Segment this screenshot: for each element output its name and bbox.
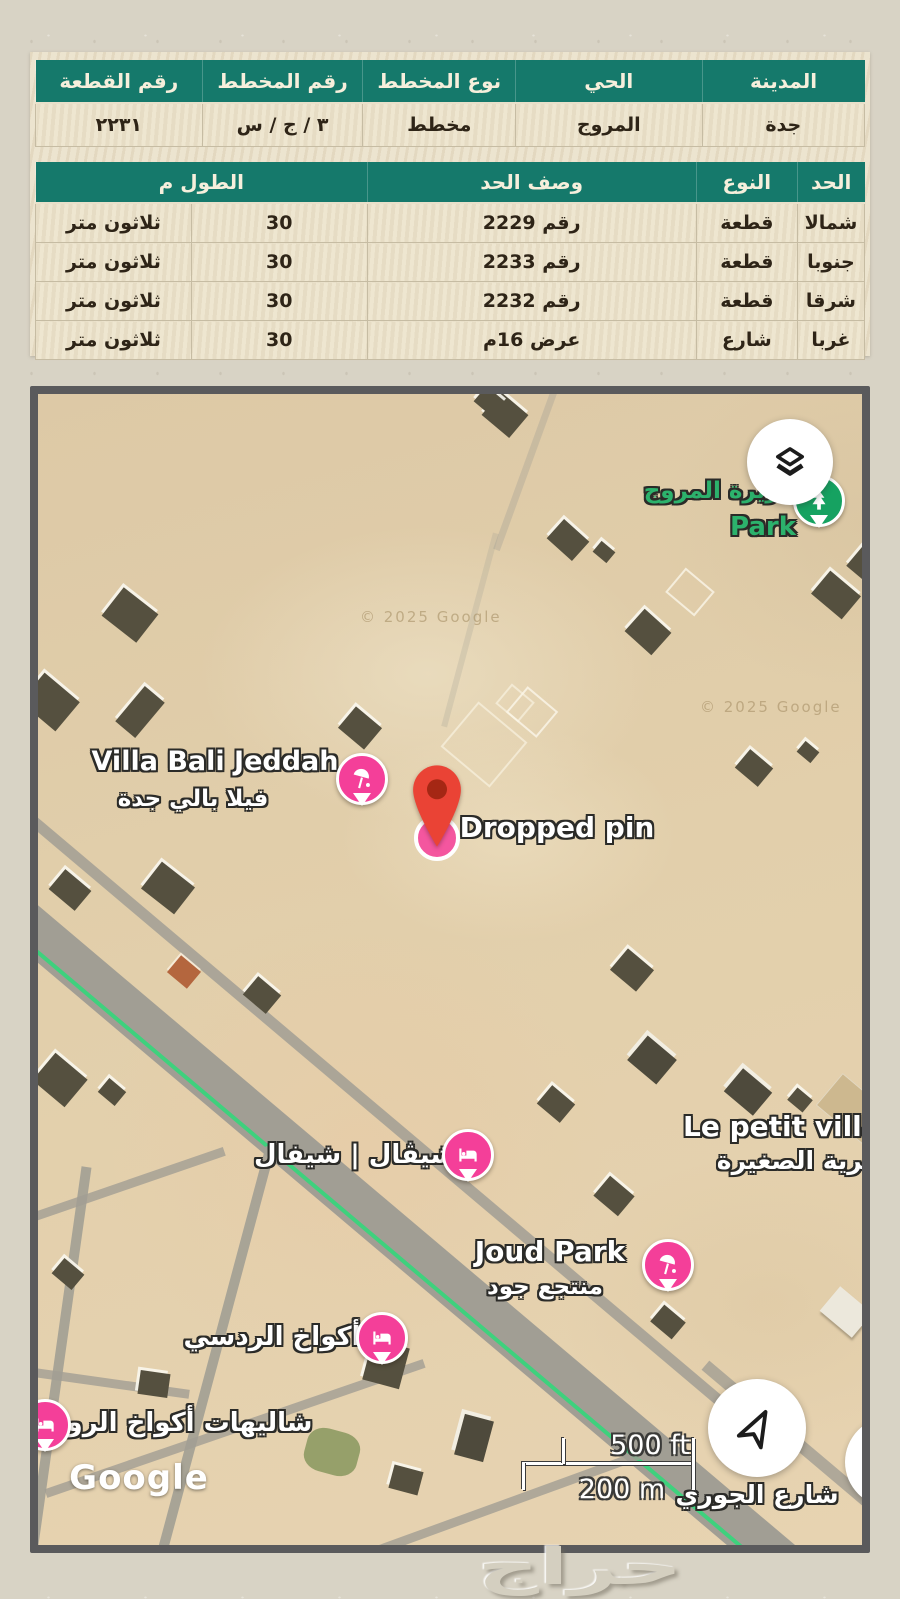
joud-park-label[interactable]: Joud Park (475, 1235, 625, 1268)
boundary-desc: رقم 2232 (367, 282, 696, 321)
highway-road (38, 888, 811, 1545)
scale-metric: 200 m (579, 1474, 665, 1505)
beach-umbrella-icon (349, 766, 375, 792)
dropped-pin-label[interactable]: Dropped pin (460, 811, 655, 844)
map-building (537, 1085, 575, 1123)
map-building (52, 1258, 85, 1290)
map-copyright: © 2025 Google (360, 608, 502, 626)
map-building (625, 609, 672, 655)
city-value: جدة (702, 103, 864, 147)
map-building (593, 541, 616, 563)
akwakh-pin[interactable] (356, 1312, 408, 1364)
boundary-length: 30 (191, 321, 367, 360)
petit-village-label-ar[interactable]: قرية الصغيرة (717, 1146, 862, 1175)
map-building (38, 1053, 88, 1108)
plot-summary-table: المدينة الحي نوع المخطط رقم المخطط رقم ا… (35, 60, 865, 147)
boundary-length-text: ثلاثون متر (36, 243, 192, 282)
boundary-side: غربا (797, 321, 864, 360)
park-label-en[interactable]: Park (730, 512, 796, 542)
plan-type-value: مخطط (363, 103, 516, 147)
col-plan-type: نوع المخطط (363, 60, 516, 103)
boundaries-table: الحد النوع وصف الحد الطول م شمالا قطعة ر… (35, 162, 865, 360)
col-type: النوع (696, 162, 797, 203)
col-length: الطول م (36, 162, 368, 203)
col-boundary: الحد (797, 162, 864, 203)
boundary-desc: رقم 2229 (367, 203, 696, 243)
map-building (98, 1078, 126, 1106)
boundary-type: قطعة (696, 243, 797, 282)
petit-village-label[interactable]: Le petit village (683, 1110, 862, 1143)
boundary-length: 30 (191, 282, 367, 321)
table-row: جدة المروج مخطط ٣ / ج / س ٢٢٣١ (36, 103, 865, 147)
navigation-arrow-icon (726, 1397, 788, 1459)
scale-bar (522, 1462, 694, 1465)
plot-number-value: ٢٢٣١ (36, 103, 203, 147)
table-row: شمالا قطعة رقم 2229 30 ثلاثون متر (36, 203, 865, 243)
map-building (102, 587, 159, 642)
bed-icon (38, 1412, 58, 1438)
col-district: الحي (516, 60, 703, 103)
chalets-label[interactable]: شاليهات أكواخ الروز (52, 1408, 313, 1438)
map-road (38, 1147, 226, 1224)
scale-bar-tick (562, 1438, 565, 1464)
layers-button[interactable] (747, 419, 833, 505)
beach-umbrella-icon (655, 1252, 681, 1278)
boundary-desc: رقم 2233 (367, 243, 696, 282)
map-building (454, 1414, 494, 1462)
google-logo: Google (69, 1458, 209, 1498)
map-building (593, 1176, 634, 1216)
map-building (115, 686, 164, 738)
cheval-label[interactable]: شيڤال | شيفال (254, 1140, 456, 1170)
map-building (38, 673, 80, 732)
col-plot-number: رقم القطعة (36, 60, 203, 103)
map-building (735, 749, 773, 787)
boundary-type: شارع (696, 321, 797, 360)
boundary-type: قطعة (696, 282, 797, 321)
navigation-button[interactable] (708, 1379, 806, 1477)
table-row: غربا شارع عرض 16م 30 ثلاثون متر (36, 321, 865, 360)
map-building (388, 1465, 423, 1496)
villa-bali-pin[interactable] (336, 753, 388, 805)
scale-bar-tick (522, 1462, 525, 1490)
table-row: شرقا قطعة رقم 2232 30 ثلاثون متر (36, 282, 865, 321)
map-building (811, 571, 861, 620)
map-building (797, 741, 820, 763)
map-building (137, 1370, 170, 1398)
boundary-length: 30 (191, 203, 367, 243)
dropped-pin-marker[interactable] (408, 763, 466, 849)
bed-icon (455, 1142, 481, 1168)
boundary-side: شرقا (797, 282, 864, 321)
map-building (820, 1286, 862, 1338)
col-city: المدينة (702, 60, 864, 103)
map-building (724, 1068, 772, 1115)
plan-number-value: ٣ / ج / س (202, 103, 363, 147)
district-value: المروج (516, 103, 703, 147)
table-row: جنوبا قطعة رقم 2233 30 ثلاثون متر (36, 243, 865, 282)
col-plan-number: رقم المخطط (202, 60, 363, 103)
map-copyright: © 2025 Google (700, 698, 842, 716)
boundary-length-text: ثلاثون متر (36, 321, 192, 360)
map-frame: © 2025 Google © 2025 Google جزيرة المروج… (30, 386, 870, 1553)
map-building (627, 1036, 677, 1085)
boundary-desc: عرض 16م (367, 321, 696, 360)
scale-imperial: 500 ft (610, 1430, 690, 1461)
scale-bar-tick (692, 1438, 695, 1490)
boundary-side: جنوبا (797, 243, 864, 282)
map-building (141, 862, 195, 915)
map-building (338, 706, 382, 749)
col-description: وصف الحد (367, 162, 696, 203)
map-building (49, 869, 92, 911)
chalets-pin[interactable] (38, 1399, 71, 1451)
joud-park-pin[interactable] (642, 1239, 694, 1291)
joud-park-label-ar[interactable]: منتجع جود (487, 1274, 603, 1300)
boundary-side: شمالا (797, 203, 864, 243)
map-building (547, 519, 590, 561)
street-label: شارع الجوري (675, 1480, 838, 1509)
page: المدينة الحي نوع المخطط رقم المخطط رقم ا… (0, 0, 900, 1599)
boundary-length-text: ثلاثون متر (36, 282, 192, 321)
boundary-type: قطعة (696, 203, 797, 243)
table-header-row: الحد النوع وصف الحد الطول م (36, 162, 865, 203)
table-header-row: المدينة الحي نوع المخطط رقم المخطط رقم ا… (36, 60, 865, 103)
bed-icon (369, 1325, 395, 1351)
boundary-length-text: ثلاثون متر (36, 203, 192, 243)
akwakh-label[interactable]: أكواخ الردسي (183, 1322, 360, 1352)
map-viewport[interactable]: © 2025 Google © 2025 Google جزيرة المروج… (38, 394, 862, 1545)
map-road (441, 533, 499, 728)
map-building (846, 534, 862, 587)
villa-bali-label[interactable]: Villa Bali Jeddah (92, 746, 339, 777)
map-building (610, 948, 654, 991)
cheval-pin[interactable] (442, 1129, 494, 1181)
haraj-watermark: حراج (2, 1538, 900, 1596)
map-building (665, 568, 715, 617)
map-building (650, 1305, 686, 1340)
boundary-length: 30 (191, 243, 367, 282)
map-building (787, 1087, 813, 1112)
villa-bali-label-ar[interactable]: فيلا بالي جدة (118, 786, 269, 812)
layers-icon (769, 441, 811, 483)
